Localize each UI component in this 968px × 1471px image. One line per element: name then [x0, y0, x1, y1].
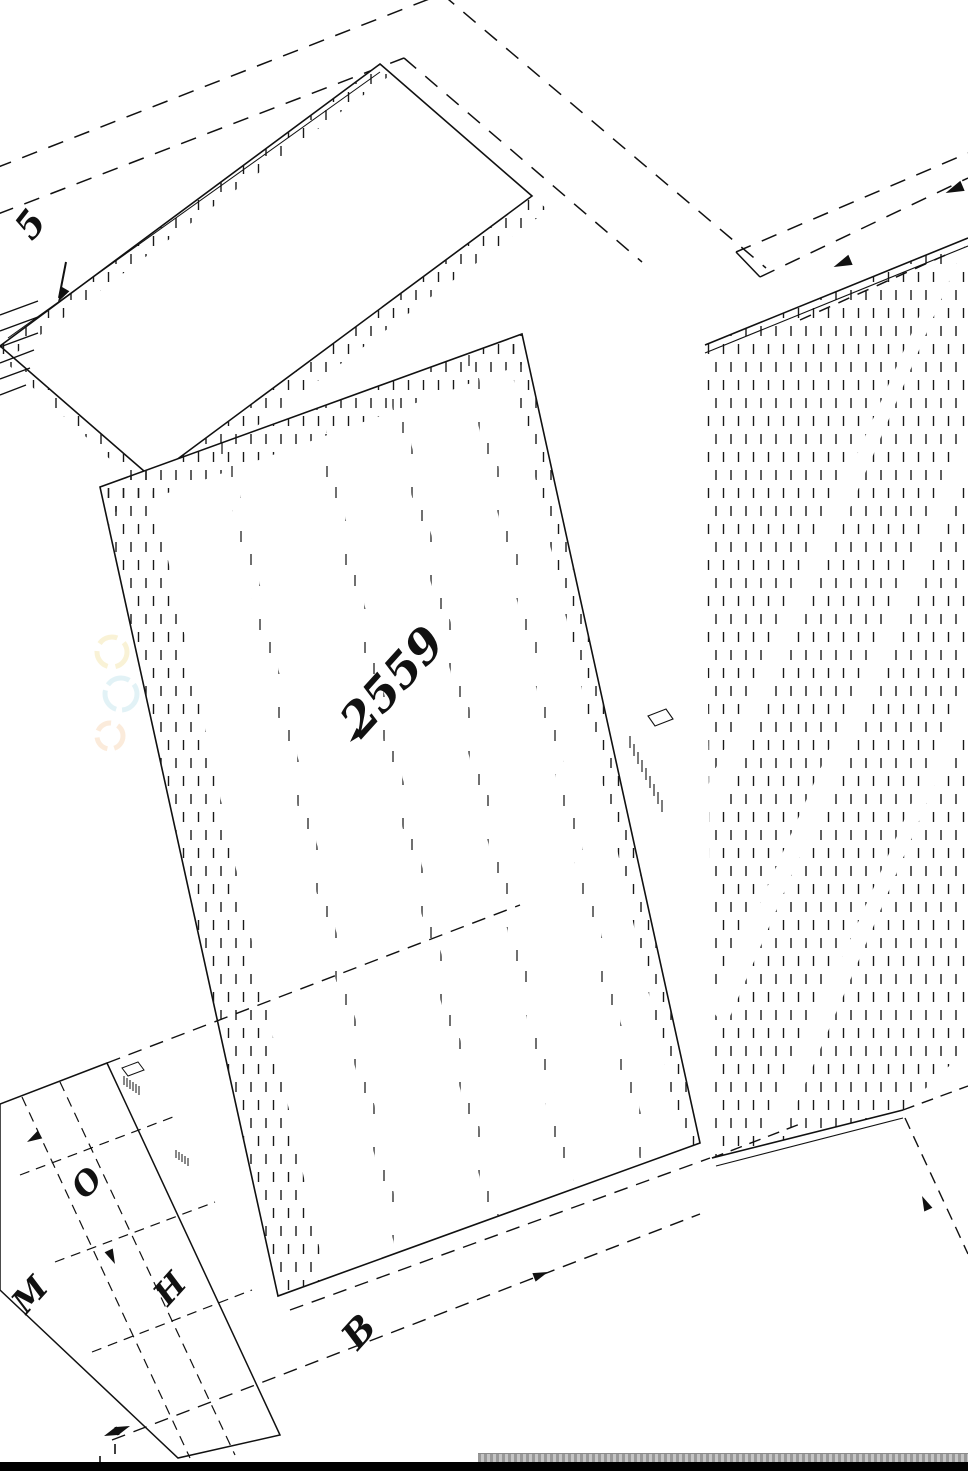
panel-right: [705, 208, 968, 1254]
drawing-canvas: 5 2559: [0, 0, 968, 1471]
watermark-logo: [97, 637, 137, 749]
bottom-border-bar: [0, 1462, 968, 1471]
panel-right-arrow-icon: [918, 1194, 932, 1211]
panel-center: [100, 334, 710, 1310]
bar-arrow-icon: [946, 182, 963, 196]
part-marker-5: 5: [6, 202, 69, 304]
bar-arrow-icon: [834, 256, 851, 270]
hinge-detail: [630, 709, 673, 812]
dim-b-label: B: [333, 1307, 385, 1358]
isometric-drawing: 5 2559: [0, 0, 968, 1471]
dim-b-arrow-icon: [114, 1422, 131, 1436]
dim-b-arrow-icon: [532, 1268, 549, 1282]
part-marker-label: 5: [6, 202, 55, 248]
